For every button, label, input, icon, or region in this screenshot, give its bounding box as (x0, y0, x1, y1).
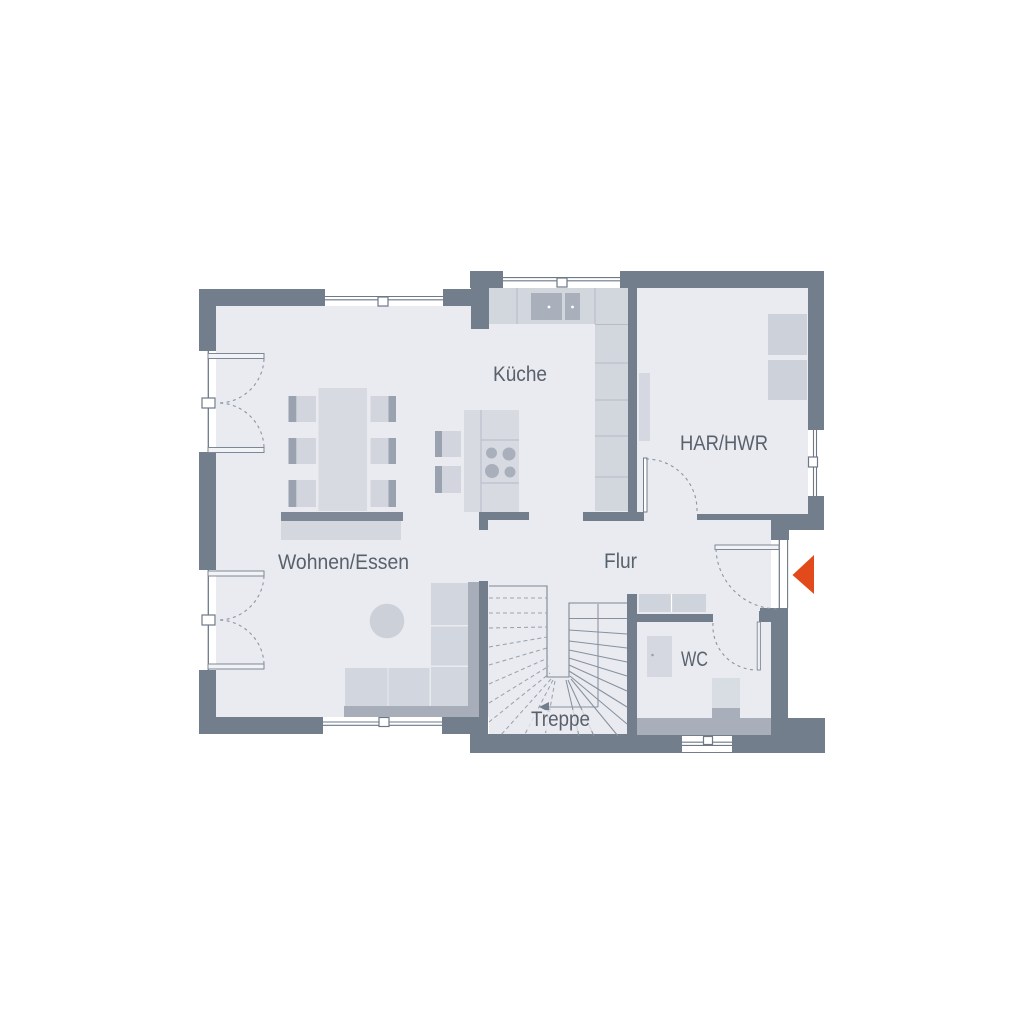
svg-text:Treppe: Treppe (531, 707, 590, 731)
svg-text:Wohnen/Essen: Wohnen/Essen (278, 550, 409, 574)
svg-text:Flur: Flur (604, 549, 637, 573)
svg-text:HAR/HWR: HAR/HWR (680, 431, 768, 455)
svg-text:WC: WC (681, 647, 708, 671)
svg-text:Küche: Küche (493, 362, 547, 386)
